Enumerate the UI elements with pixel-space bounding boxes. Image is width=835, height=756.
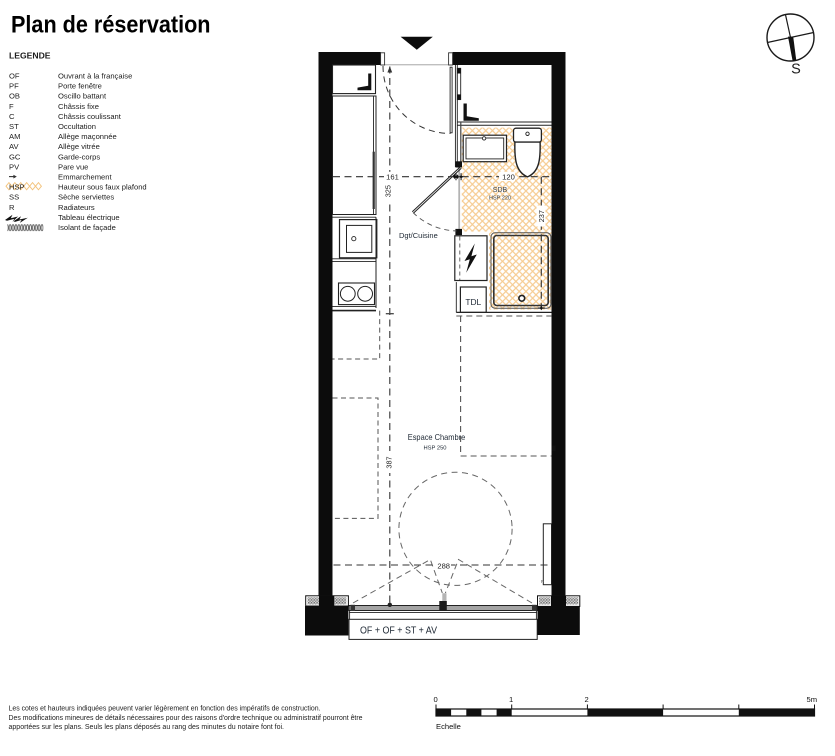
svg-text:Echelle: Echelle — [436, 722, 461, 731]
svg-text:Allège maçonnée: Allège maçonnée — [58, 132, 117, 141]
svg-text:288: 288 — [437, 562, 450, 571]
svg-text:AM: AM — [9, 132, 20, 141]
svg-text:Pare vue: Pare vue — [58, 162, 88, 171]
svg-text:SS: SS — [9, 193, 19, 202]
svg-text:HSP: HSP — [9, 183, 25, 192]
svg-text:SDB: SDB — [493, 187, 508, 194]
svg-text:Hauteur sous faux plafond: Hauteur sous faux plafond — [58, 183, 147, 192]
svg-text:PV: PV — [9, 162, 20, 171]
svg-text:Des modifications mineures de: Des modifications mineures de détails né… — [9, 713, 363, 722]
svg-text:Allège vitrée: Allège vitrée — [58, 142, 100, 151]
svg-text:ST: ST — [9, 122, 19, 131]
svg-text:Ouvrant à la française: Ouvrant à la française — [58, 72, 132, 81]
svg-text:OF + OF + ST + AV: OF + OF + ST + AV — [360, 626, 437, 637]
svg-text:AV: AV — [9, 142, 20, 151]
svg-text:Isolant de façade: Isolant de façade — [58, 223, 116, 232]
svg-text:apportées sur les plans. Seuls: apportées sur les plans. Seuls les plans… — [9, 722, 285, 731]
svg-text:TDL: TDL — [465, 297, 481, 307]
svg-text:1: 1 — [509, 695, 513, 704]
svg-text:Châssis coulissant: Châssis coulissant — [58, 112, 122, 121]
svg-text:Tableau électrique: Tableau électrique — [58, 213, 120, 222]
svg-text:120: 120 — [502, 173, 515, 182]
svg-text:HSP 220: HSP 220 — [489, 196, 511, 202]
svg-text:HSP 250: HSP 250 — [423, 445, 446, 451]
svg-text:S: S — [791, 62, 801, 78]
svg-text:LEGENDE: LEGENDE — [9, 51, 51, 61]
svg-text:F: F — [9, 102, 14, 111]
svg-text:Les cotes et hauteurs indiquée: Les cotes et hauteurs indiquées peuvent … — [9, 704, 321, 713]
svg-text:GC: GC — [9, 152, 21, 161]
svg-text:Occultation: Occultation — [58, 122, 96, 131]
svg-text:161: 161 — [386, 173, 399, 182]
svg-text:Emmarchement: Emmarchement — [58, 173, 112, 182]
svg-text:Plan de réservation: Plan de réservation — [11, 12, 211, 39]
svg-text:5m: 5m — [807, 695, 818, 704]
svg-text:Oscillo battant: Oscillo battant — [58, 92, 107, 101]
svg-text:Radiateurs: Radiateurs — [58, 203, 95, 212]
svg-text:R: R — [9, 203, 15, 212]
svg-text:387: 387 — [384, 456, 393, 468]
svg-text:0: 0 — [434, 695, 438, 704]
svg-text:PF: PF — [9, 82, 19, 91]
svg-text:237: 237 — [537, 210, 546, 222]
svg-text:Espace Chambre: Espace Chambre — [408, 433, 466, 442]
svg-text:325: 325 — [383, 185, 392, 197]
svg-text:Garde-corps: Garde-corps — [58, 152, 100, 161]
svg-text:Dgt/Cuisine: Dgt/Cuisine — [399, 231, 438, 240]
svg-text:OF: OF — [9, 72, 20, 81]
svg-text:Châssis fixe: Châssis fixe — [58, 102, 99, 111]
svg-text:OB: OB — [9, 92, 20, 101]
svg-text:2: 2 — [585, 695, 589, 704]
svg-text:C: C — [9, 112, 15, 121]
svg-text:Sèche serviettes: Sèche serviettes — [58, 193, 114, 202]
svg-text:Porte fenêtre: Porte fenêtre — [58, 82, 102, 91]
